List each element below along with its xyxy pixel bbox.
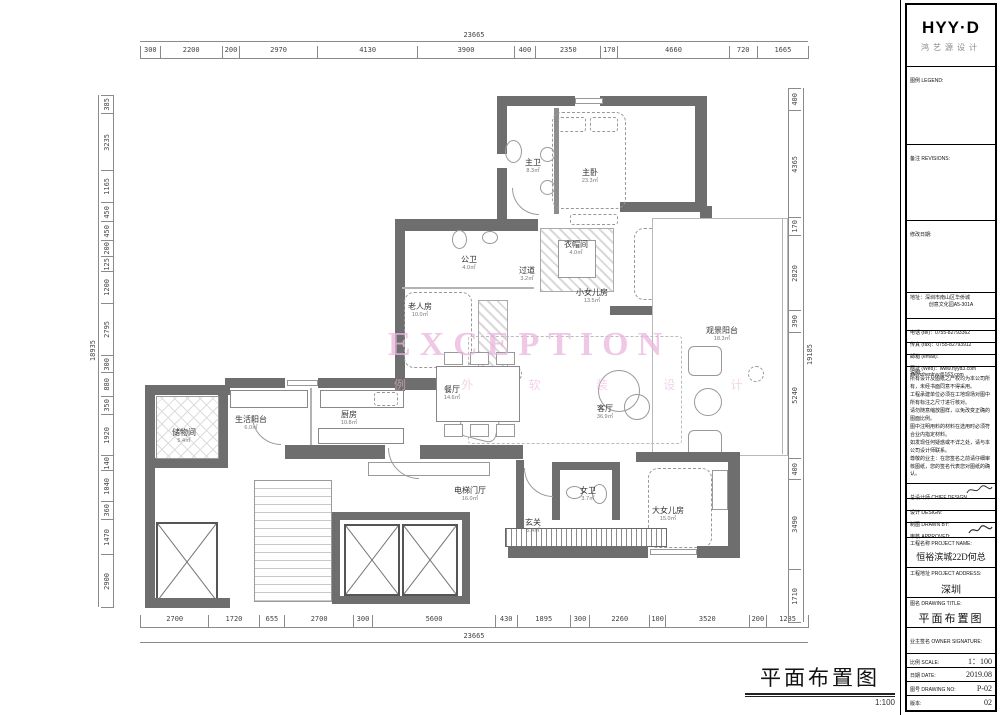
dim-segment-value: 390 bbox=[791, 315, 799, 328]
room-label-service-balcony: 生活阳台6.0㎡ bbox=[235, 415, 267, 431]
dim-segment: 1895 bbox=[518, 615, 571, 627]
notes-label: 说明: bbox=[910, 369, 992, 376]
partition bbox=[310, 388, 312, 446]
dim-segment-value: 300 bbox=[574, 615, 587, 623]
wall bbox=[462, 512, 470, 604]
dim-segment-value: 1895 bbox=[535, 615, 552, 623]
counter bbox=[230, 390, 308, 408]
address-line2: 创意文化园A5-301A bbox=[910, 302, 992, 309]
web-row: 网址 (Web)：www.hyyd3.com bbox=[907, 355, 995, 367]
dim-segment: 300 bbox=[141, 46, 161, 58]
scale-row: 比例 SCALE: 1：100 bbox=[907, 654, 995, 668]
pillow bbox=[558, 117, 586, 132]
dim-segment: 390 bbox=[789, 311, 801, 333]
dim-segment-value: 450 bbox=[103, 225, 111, 238]
dim-segment: 3490 bbox=[789, 480, 801, 570]
dim-segment: 360 bbox=[101, 502, 113, 520]
room-label-master-bed: 主卧23.3㎡ bbox=[582, 168, 598, 184]
dim-segment: 3900 bbox=[418, 46, 514, 58]
version-value: 02 bbox=[984, 698, 992, 707]
dim-segment: 1720 bbox=[209, 615, 259, 627]
room-label-public-bath: 公卫4.0㎡ bbox=[461, 255, 477, 271]
wall bbox=[285, 445, 385, 459]
dim-segment: 1470 bbox=[101, 520, 113, 556]
dim-segment-value: 2200 bbox=[183, 46, 200, 54]
drawing-sheet: 23665 3002200200297041303900400235017046… bbox=[0, 0, 1000, 715]
note-line: 工程承建单位必须在工地现场对图中所有标注之尺寸进行核对。 bbox=[910, 392, 992, 407]
note-line: 图中注明用料的材料在选用时必须符合业内指定材料。 bbox=[910, 424, 992, 439]
window bbox=[650, 549, 697, 555]
approved-signature-icon bbox=[967, 523, 993, 536]
address-label: 地址： bbox=[910, 295, 925, 301]
dim-segment: 5600 bbox=[373, 615, 496, 627]
wall bbox=[145, 385, 155, 607]
scale-value: 1：100 bbox=[968, 656, 992, 667]
room-label-corridor: 过道3.2㎡ bbox=[519, 266, 535, 282]
dim-segment: 350 bbox=[101, 397, 113, 415]
notes-section: 说明: 所有设计及图纸之产权均为本公司所有，未经书面同意不得采用。工程承建单位必… bbox=[907, 367, 995, 484]
dim-segment-value: 450 bbox=[103, 206, 111, 219]
dim-segment-value: 720 bbox=[737, 46, 750, 54]
dim-segment: 2795 bbox=[101, 304, 113, 355]
legend-section: 图例 LEGEND: bbox=[907, 67, 995, 145]
dim-bottom-segments: 2700172065527003005600430189530022601003… bbox=[140, 615, 809, 628]
dim-segment: 1165 bbox=[101, 171, 113, 203]
dim-segment-value: 1710 bbox=[791, 588, 799, 605]
wall bbox=[145, 458, 228, 468]
chair bbox=[496, 352, 515, 365]
dim-segment-value: 1665 bbox=[774, 46, 791, 54]
dim-segment-value: 2820 bbox=[791, 265, 799, 282]
chief-design-row: 总设计师 CHIEF DESIGN bbox=[907, 484, 995, 499]
glass-line bbox=[782, 218, 783, 454]
dim-segment-value: 400 bbox=[519, 46, 532, 54]
dim-segment-value: 300 bbox=[103, 358, 111, 371]
project-address-section: 工程地址 PROJECT ADDRESS: 深圳 bbox=[907, 568, 995, 598]
dim-segment-value: 350 bbox=[103, 399, 111, 412]
stove bbox=[374, 392, 398, 406]
chief-signature-icon bbox=[965, 484, 993, 496]
bench bbox=[570, 214, 618, 225]
elevator-shaft bbox=[344, 524, 400, 596]
sheet-border-line bbox=[900, 0, 901, 715]
dim-segment-value: 2700 bbox=[311, 615, 328, 623]
wall bbox=[332, 512, 470, 520]
logo-subtext: 鸿艺源设计 bbox=[921, 42, 981, 53]
coffee-table bbox=[624, 394, 650, 420]
dim-segment-value: 2260 bbox=[611, 615, 628, 623]
dim-segment: 1040 bbox=[101, 471, 113, 501]
dim-segment: 1920 bbox=[101, 415, 113, 456]
chair bbox=[470, 424, 489, 437]
dim-segment-value: 2970 bbox=[270, 46, 287, 54]
wall bbox=[218, 385, 228, 465]
window bbox=[575, 98, 603, 104]
drawing-no-row: 图号 DRAWING NO: P-02 bbox=[907, 682, 995, 696]
dim-segment: 170 bbox=[601, 46, 618, 58]
toilet-icon bbox=[505, 140, 522, 163]
dim-left-segments: 3853235116545045020012512002795300880350… bbox=[101, 95, 114, 608]
wall bbox=[552, 462, 560, 520]
room-label-living: 客厅36.9㎡ bbox=[597, 404, 613, 420]
basin-icon bbox=[482, 231, 498, 244]
dim-segment-value: 360 bbox=[103, 504, 111, 517]
wall bbox=[497, 168, 507, 223]
chair bbox=[688, 346, 722, 376]
dim-segment: 4130 bbox=[318, 46, 419, 58]
dim-segment: 430 bbox=[496, 615, 518, 627]
owner-signature-section: 业主签名 OWNER SIGNATURE: bbox=[907, 628, 995, 654]
dim-segment: 2260 bbox=[590, 615, 650, 627]
dim-segment: 2200 bbox=[161, 46, 223, 58]
wall bbox=[552, 462, 620, 470]
sheet-scale: 1:100 bbox=[745, 698, 895, 707]
counter bbox=[318, 428, 404, 444]
wall bbox=[508, 546, 648, 558]
dim-segment: 3520 bbox=[666, 615, 750, 627]
room-label-foyer: 玄关5.4㎡ bbox=[525, 518, 541, 534]
dim-segment: 300 bbox=[354, 615, 373, 627]
dim-bottom-overall: 23665 bbox=[140, 631, 808, 643]
dim-segment-value: 655 bbox=[266, 615, 279, 623]
dim-segment-value: 300 bbox=[357, 615, 370, 623]
wall bbox=[318, 378, 406, 388]
notes-list: 所有设计及图纸之产权均为本公司所有，未经书面同意不得采用。工程承建单位必须在工地… bbox=[910, 376, 992, 479]
dim-segment: 400 bbox=[515, 46, 537, 58]
wall bbox=[225, 378, 285, 388]
dim-segment: 4365 bbox=[789, 111, 801, 219]
revisions-section: 备注 REVISIONS: bbox=[907, 145, 995, 221]
version-label: 版本: bbox=[910, 700, 921, 707]
date-row: 日期 DATE: 2019.08 bbox=[907, 668, 995, 682]
title-underline bbox=[745, 696, 895, 697]
dim-segment-value: 4130 bbox=[359, 46, 376, 54]
note-line: 所有设计及图纸之产权均为本公司所有，未经书面同意不得采用。 bbox=[910, 376, 992, 391]
elevator-shaft bbox=[402, 524, 458, 596]
dim-segment-value: 1720 bbox=[226, 615, 243, 623]
dim-segment-value: 170 bbox=[603, 46, 616, 54]
dim-segment-value: 4365 bbox=[791, 156, 799, 173]
dim-segment: 2820 bbox=[789, 236, 801, 312]
dim-segment-value: 2900 bbox=[103, 573, 111, 590]
shaft-x-icon bbox=[346, 526, 398, 594]
dim-segment-value: 3490 bbox=[791, 516, 799, 533]
dim-segment-value: 5600 bbox=[426, 615, 443, 623]
marker-circle bbox=[748, 366, 764, 382]
drawing-title-section: 图名 DRAWING TITLE: 平面布置图 bbox=[907, 598, 995, 628]
project-address-value: 深圳 bbox=[910, 581, 992, 596]
drawing-no-label: 图号 DRAWING NO: bbox=[910, 686, 956, 693]
email-row: 邮箱 (email)：shenzhenhyy@163.com bbox=[907, 343, 995, 355]
shaft-x-icon bbox=[158, 524, 216, 600]
dim-segment-value: 2700 bbox=[166, 615, 183, 623]
room-label-big-daughter: 大女儿房15.0㎡ bbox=[652, 506, 684, 522]
dim-top-segments: 3002200200297041303900400235017046607201… bbox=[140, 46, 809, 59]
dim-segment-value: 2795 bbox=[103, 321, 111, 338]
dim-segment: 100 bbox=[650, 615, 666, 627]
elevator-shaft bbox=[156, 522, 218, 602]
dim-segment: 200 bbox=[101, 241, 113, 257]
room-label-small-daughter: 小女儿房13.5㎡ bbox=[576, 288, 608, 304]
dim-segment: 400 bbox=[789, 459, 801, 481]
dim-segment-value: 300 bbox=[144, 46, 157, 54]
dim-segment-value: 100 bbox=[651, 615, 664, 623]
project-name-section: 工程名称 PROJECT NAME: 恒裕滨城22D何总 bbox=[907, 538, 995, 568]
room-label-elder: 老人房10.0㎡ bbox=[408, 302, 432, 318]
room-label-closet: 衣帽间4.0㎡ bbox=[564, 240, 588, 256]
dim-segment: 300 bbox=[101, 356, 113, 373]
project-address-label: 工程地址 PROJECT ADDRESS: bbox=[910, 570, 992, 577]
wall bbox=[332, 512, 340, 604]
dim-segment-value: 3235 bbox=[103, 134, 111, 151]
wall bbox=[612, 462, 620, 520]
dim-segment: 450 bbox=[101, 203, 113, 222]
dim-segment: 655 bbox=[260, 615, 286, 627]
drawing-no-value: P-02 bbox=[977, 684, 992, 693]
dim-segment-value: 880 bbox=[103, 378, 111, 391]
revision-date-label: 修改日期: bbox=[910, 232, 931, 238]
dim-segment-value: 2350 bbox=[560, 46, 577, 54]
stairs bbox=[254, 480, 332, 602]
room-label-guest-wc: 女卫3.7㎡ bbox=[580, 486, 596, 502]
date-value: 2019.08 bbox=[966, 670, 992, 679]
dim-segment: 1200 bbox=[101, 272, 113, 304]
address-section: 地址：深圳市南山区华侨城 创意文化园A5-301A bbox=[907, 293, 995, 319]
dim-segment-value: 3900 bbox=[458, 46, 475, 54]
dim-segment-value: 200 bbox=[103, 242, 111, 255]
dim-segment-value: 1200 bbox=[103, 279, 111, 296]
dim-segment: 200 bbox=[223, 46, 241, 58]
note-line: 请勿随意缩放图样，以免改变正确的图面比例。 bbox=[910, 408, 992, 423]
dim-segment-value: 1165 bbox=[103, 178, 111, 195]
logo-text: HYY·D bbox=[922, 18, 980, 38]
dim-segment: 2970 bbox=[240, 46, 317, 58]
project-name-label: 工程名称 PROJECT NAME: bbox=[910, 540, 992, 547]
drawing-title-label: 图名 DRAWING TITLE: bbox=[910, 600, 992, 607]
dim-segment: 200 bbox=[750, 615, 767, 627]
dim-segment: 3235 bbox=[101, 114, 113, 171]
desk bbox=[712, 470, 728, 510]
dim-segment: 2350 bbox=[536, 46, 601, 58]
title-block: HYY·D 鸿艺源设计 图例 LEGEND: 备注 REVISIONS: 修改日… bbox=[905, 3, 997, 712]
logo: HYY·D 鸿艺源设计 bbox=[907, 5, 995, 67]
room-label-kitchen: 厨房10.8㎡ bbox=[341, 410, 357, 426]
lobby-cabinet bbox=[368, 462, 490, 476]
dim-left-overall: 18935 bbox=[87, 95, 99, 607]
room-label-dining: 餐厅14.6㎡ bbox=[444, 385, 460, 401]
design-row: 设计 DESIGN: bbox=[907, 499, 995, 511]
dim-segment-value: 1040 bbox=[103, 478, 111, 495]
tel-row: 电话 (tel)：0755-82793362 bbox=[907, 319, 995, 331]
sheet-title: 平面布置图 1:100 bbox=[745, 662, 895, 707]
room-label-elevator-hall: 电梯门厅16.0㎡ bbox=[454, 486, 486, 502]
dim-segment: 880 bbox=[101, 373, 113, 397]
room-label-master-bath: 主卫8.3㎡ bbox=[525, 158, 541, 174]
dim-segment-value: 200 bbox=[752, 615, 765, 623]
window bbox=[287, 380, 318, 386]
dim-segment: 125 bbox=[101, 257, 113, 272]
dim-segment: 140 bbox=[101, 456, 113, 471]
door-arc bbox=[524, 468, 553, 497]
dim-segment-value: 200 bbox=[225, 46, 238, 54]
wall bbox=[497, 96, 575, 106]
version-row: 版本: 02 bbox=[907, 696, 995, 710]
wall bbox=[695, 96, 707, 208]
sheet-title-text: 平面布置图 bbox=[745, 662, 895, 695]
dim-segment-value: 430 bbox=[500, 615, 513, 623]
fax-row: 传真 (fax)：0755-82793912 bbox=[907, 331, 995, 343]
side-table bbox=[694, 388, 722, 416]
dim-segment-value: 140 bbox=[103, 457, 111, 470]
dim-segment-value: 125 bbox=[103, 258, 111, 271]
dim-segment-value: 400 bbox=[791, 463, 799, 476]
legend-label: 图例 LEGEND: bbox=[910, 78, 943, 84]
dim-segment: 5240 bbox=[789, 333, 801, 459]
chair bbox=[470, 352, 489, 365]
dim-segment: 2900 bbox=[101, 555, 113, 608]
dim-segment: 1710 bbox=[789, 570, 801, 623]
dim-segment-value: 385 bbox=[103, 98, 111, 111]
dim-segment-value: 4660 bbox=[665, 46, 682, 54]
owner-signature-label: 业主签名 OWNER SIGNATURE: bbox=[910, 639, 982, 645]
door-arc bbox=[512, 188, 539, 215]
dim-segment: 1665 bbox=[758, 46, 809, 58]
drawing-title-value: 平面布置图 bbox=[910, 610, 992, 626]
wall bbox=[620, 202, 707, 212]
wall bbox=[636, 452, 740, 462]
wall bbox=[600, 96, 707, 106]
shaft-x-icon bbox=[404, 526, 456, 594]
address-line1: 深圳市南山区华侨城 bbox=[925, 295, 970, 301]
drawn-row: 制图 DRAWN BY: bbox=[907, 511, 995, 523]
dim-right-segments: 40043651702820390524040034901710 bbox=[788, 88, 801, 623]
dim-segment: 4660 bbox=[618, 46, 729, 58]
revision-date-section: 修改日期: bbox=[907, 221, 995, 293]
dim-segment-value: 1920 bbox=[103, 427, 111, 444]
dim-segment: 450 bbox=[101, 222, 113, 241]
chair bbox=[444, 424, 463, 437]
toilet-icon bbox=[452, 230, 467, 249]
chair bbox=[444, 352, 463, 365]
dim-top-overall: 23665 bbox=[140, 30, 808, 42]
dim-right-overall: 19185 bbox=[803, 88, 815, 622]
scale-label: 比例 SCALE: bbox=[910, 659, 939, 666]
note-line: 如发现任何疑惑或不详之处，请与本公司设计师联系。 bbox=[910, 440, 992, 455]
dim-segment: 400 bbox=[789, 89, 801, 111]
room-label-storage: 储物间5.4㎡ bbox=[172, 428, 196, 444]
wall bbox=[420, 445, 523, 459]
dim-segment-value: 5240 bbox=[791, 387, 799, 404]
wall bbox=[145, 598, 230, 608]
dim-segment: 300 bbox=[571, 615, 590, 627]
dim-segment: 720 bbox=[730, 46, 758, 58]
dim-segment: 385 bbox=[101, 96, 113, 114]
room-label-view-balcony: 观景阳台18.3㎡ bbox=[706, 326, 738, 342]
approved-row: 审核 APPROVED: bbox=[907, 523, 995, 538]
dim-segment: 2700 bbox=[285, 615, 353, 627]
dim-segment: 2700 bbox=[141, 615, 209, 627]
wall bbox=[697, 546, 740, 558]
project-name-value: 恒裕滨城22D何总 bbox=[910, 550, 992, 563]
partition bbox=[402, 287, 534, 289]
pillow bbox=[590, 117, 618, 132]
chair bbox=[496, 424, 515, 437]
revisions-label: 备注 REVISIONS: bbox=[910, 156, 950, 162]
dim-segment-value: 1470 bbox=[103, 529, 111, 546]
wall bbox=[728, 452, 740, 558]
dim-segment-value: 400 bbox=[791, 93, 799, 106]
wall bbox=[395, 219, 538, 231]
date-label: 日期 DATE: bbox=[910, 672, 936, 679]
dim-segment: 170 bbox=[789, 218, 801, 235]
dim-segment-value: 170 bbox=[791, 220, 799, 233]
note-line: 尊敬的业主：在您签名之前请仔细审核图纸，您的签名代表您对图纸的确认。 bbox=[910, 456, 992, 479]
dim-segment-value: 3520 bbox=[699, 615, 716, 623]
